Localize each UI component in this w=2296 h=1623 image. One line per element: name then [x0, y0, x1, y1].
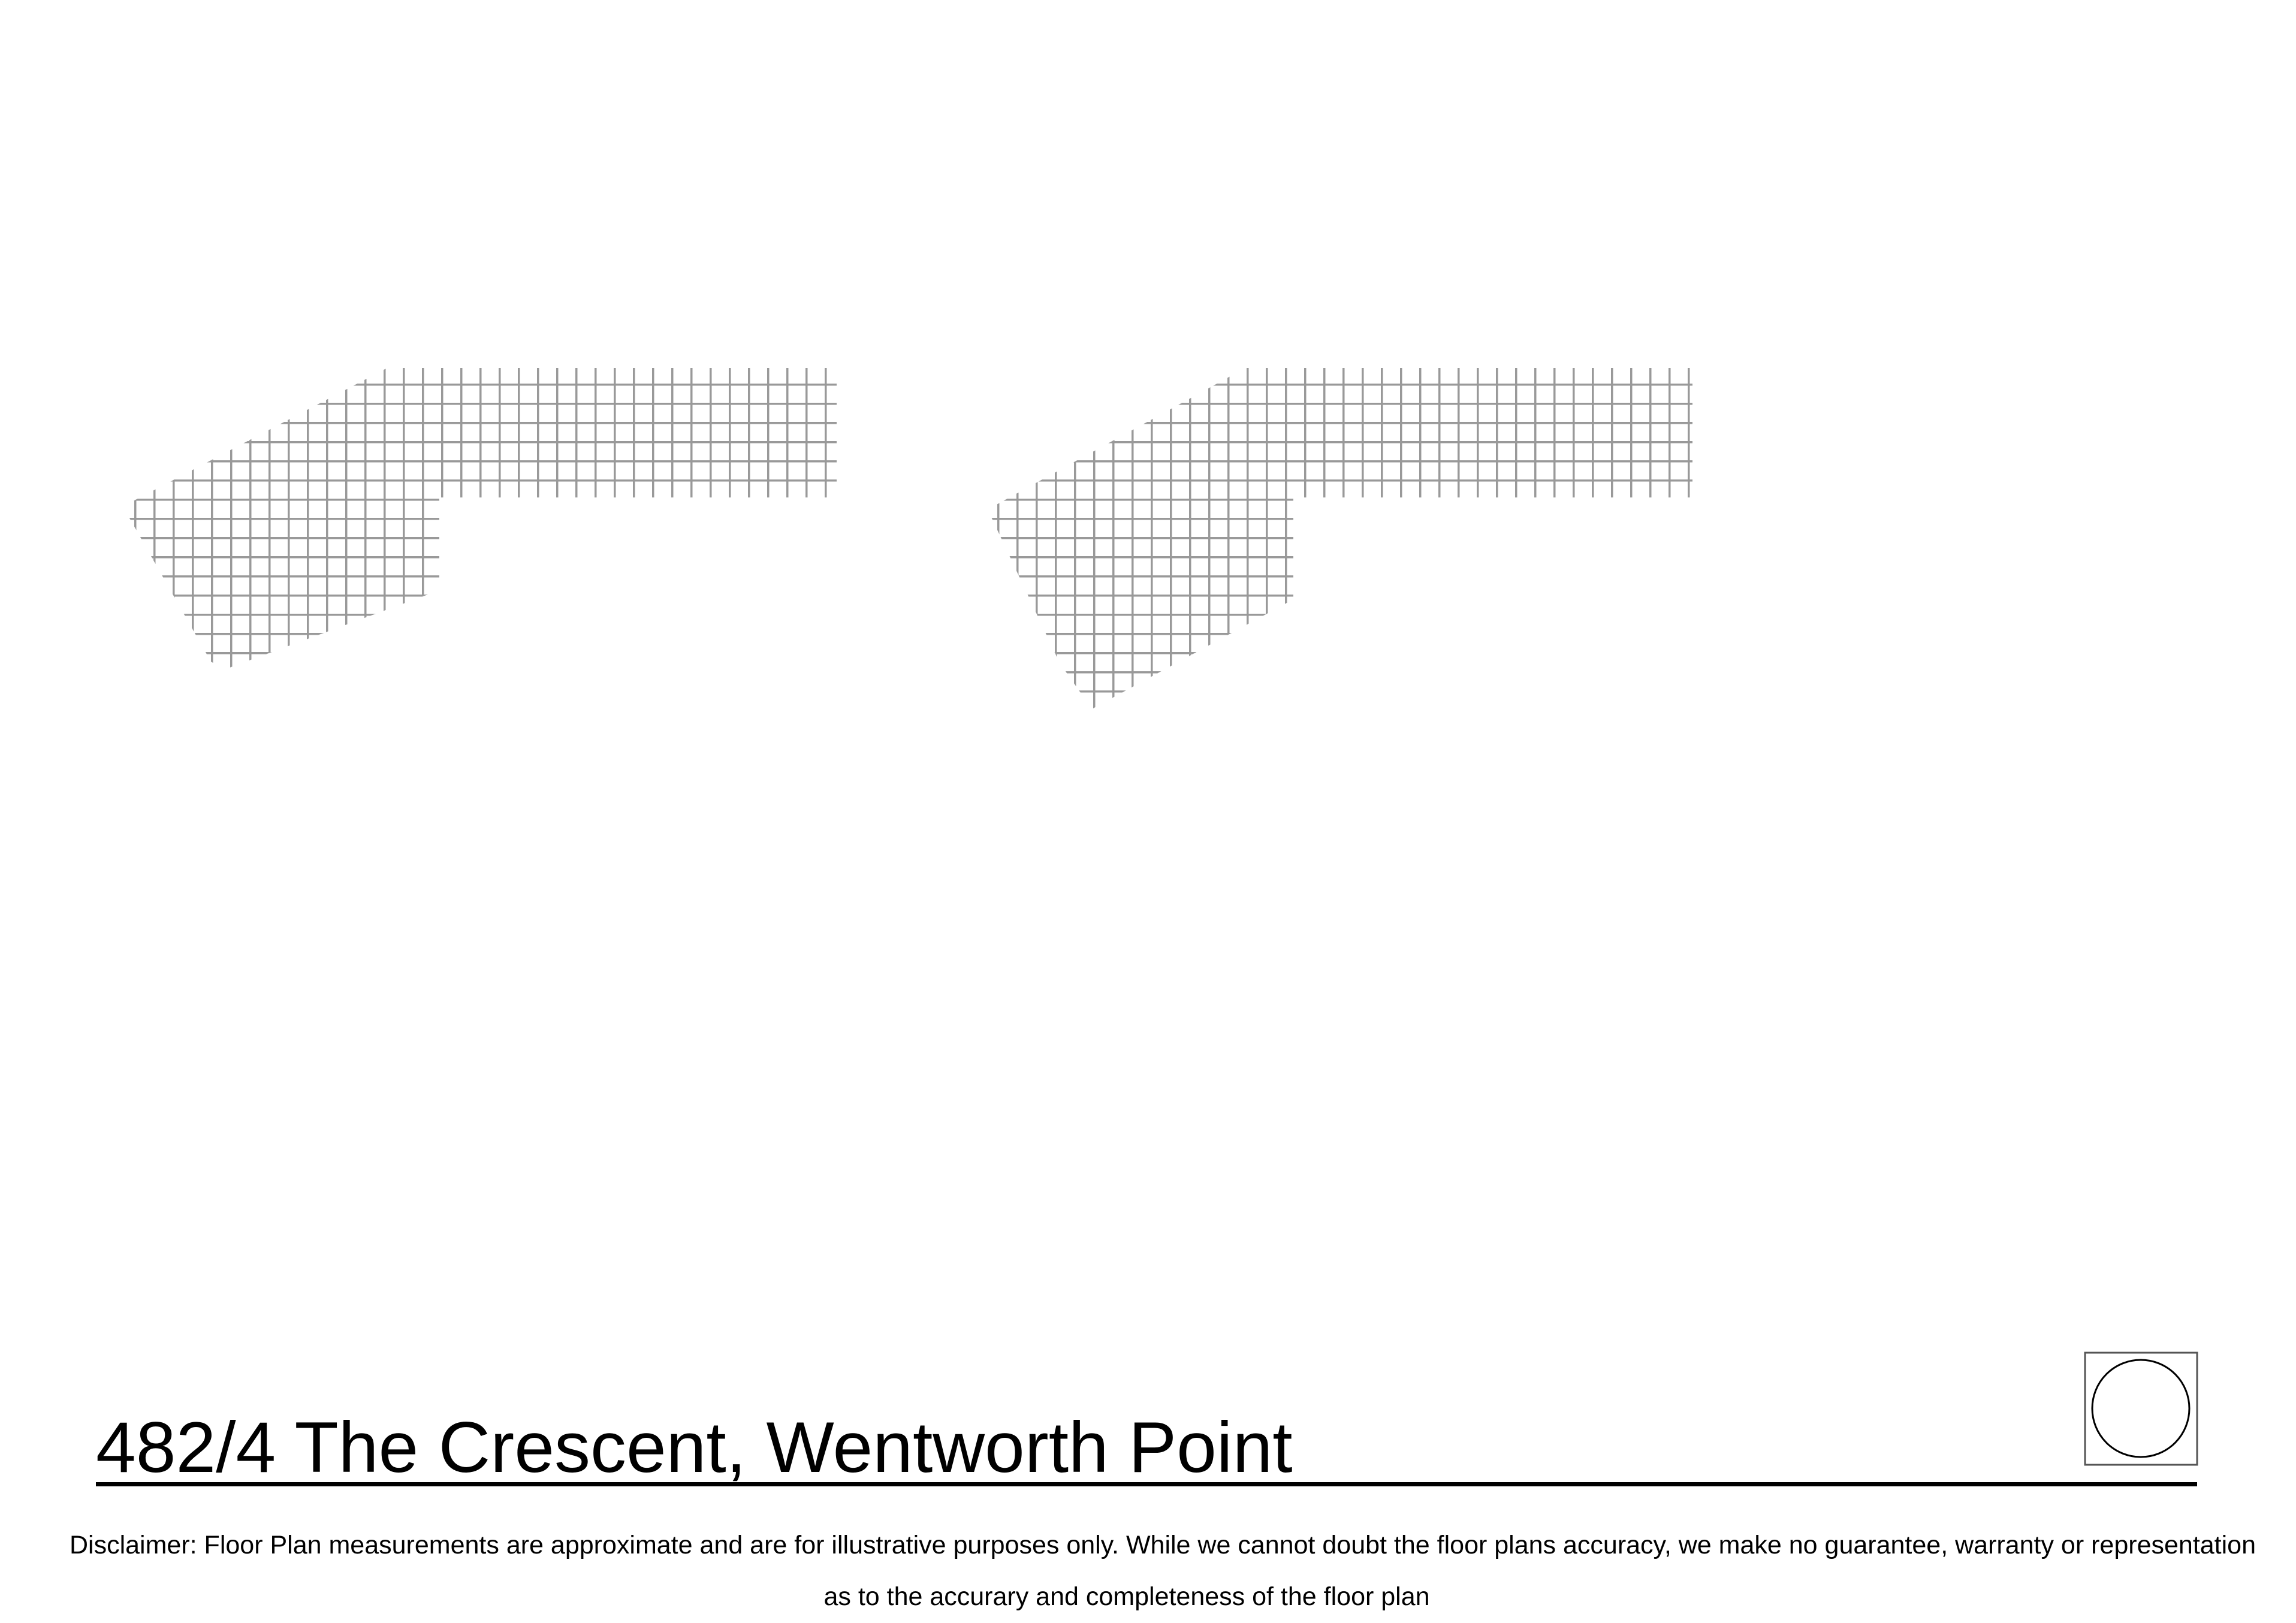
svg-text:Disclaimer: Floor Plan measure: Disclaimer: Floor Plan measurements are … — [70, 1531, 2256, 1559]
svg-text:as to the accurary and complet: as to the accurary and completeness of t… — [823, 1582, 1429, 1611]
svg-text:482/4 The Crescent, Wentworth: 482/4 The Crescent, Wentworth Point — [96, 1407, 1293, 1488]
